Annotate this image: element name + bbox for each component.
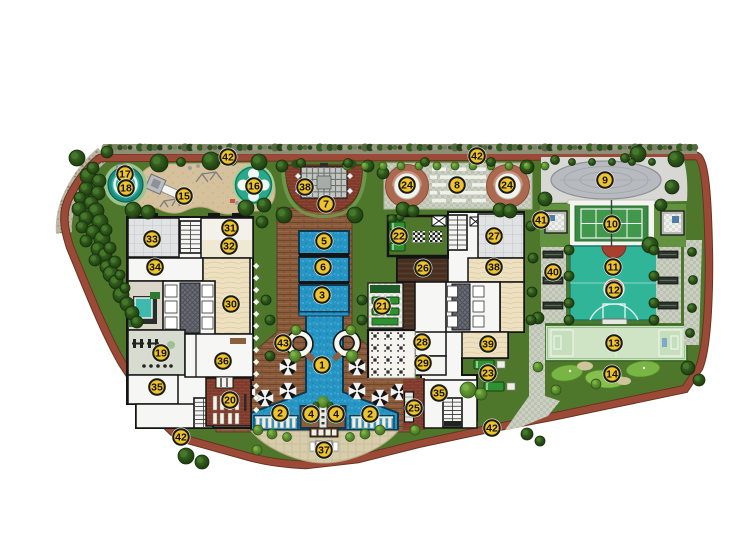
svg-text:4: 4 [333,409,339,421]
svg-text:28: 28 [416,337,428,349]
svg-text:32: 32 [223,241,235,253]
svg-text:8: 8 [454,180,460,192]
svg-text:9: 9 [602,175,608,187]
svg-text:33: 33 [146,234,158,246]
svg-text:10: 10 [606,219,618,231]
svg-text:1: 1 [319,360,325,372]
svg-text:42: 42 [486,423,498,435]
svg-text:42: 42 [175,432,187,444]
svg-text:22: 22 [393,231,405,243]
svg-text:16: 16 [248,181,260,193]
svg-text:18: 18 [120,183,132,195]
svg-text:40: 40 [547,267,559,279]
svg-text:20: 20 [224,395,236,407]
svg-text:27: 27 [488,231,500,243]
svg-text:14: 14 [606,369,618,381]
svg-text:36: 36 [217,356,229,368]
svg-text:38: 38 [488,262,500,274]
svg-text:7: 7 [323,199,329,211]
svg-text:6: 6 [320,262,326,274]
svg-text:2: 2 [277,408,283,420]
svg-text:21: 21 [376,301,388,313]
svg-text:24: 24 [401,180,413,192]
svg-text:30: 30 [225,299,237,311]
svg-text:42: 42 [222,152,234,164]
svg-text:31: 31 [224,223,236,235]
svg-text:3: 3 [319,290,325,302]
svg-text:23: 23 [482,368,494,380]
svg-text:11: 11 [607,262,618,274]
svg-text:39: 39 [482,339,494,351]
svg-text:4: 4 [308,409,314,421]
svg-text:35: 35 [433,388,445,400]
svg-text:37: 37 [318,445,330,457]
svg-text:43: 43 [277,338,289,350]
svg-text:25: 25 [408,403,420,415]
svg-text:38: 38 [299,182,311,194]
svg-text:24: 24 [501,180,513,192]
svg-text:13: 13 [608,338,620,350]
svg-text:2: 2 [367,409,373,421]
svg-text:34: 34 [149,262,161,274]
svg-text:41: 41 [535,215,547,227]
svg-text:35: 35 [151,382,163,394]
svg-text:26: 26 [417,263,429,275]
svg-text:12: 12 [608,285,620,297]
svg-text:5: 5 [321,236,327,248]
svg-text:29: 29 [417,358,429,370]
svg-text:15: 15 [178,191,190,203]
svg-text:42: 42 [471,151,483,163]
svg-text:19: 19 [155,348,167,360]
